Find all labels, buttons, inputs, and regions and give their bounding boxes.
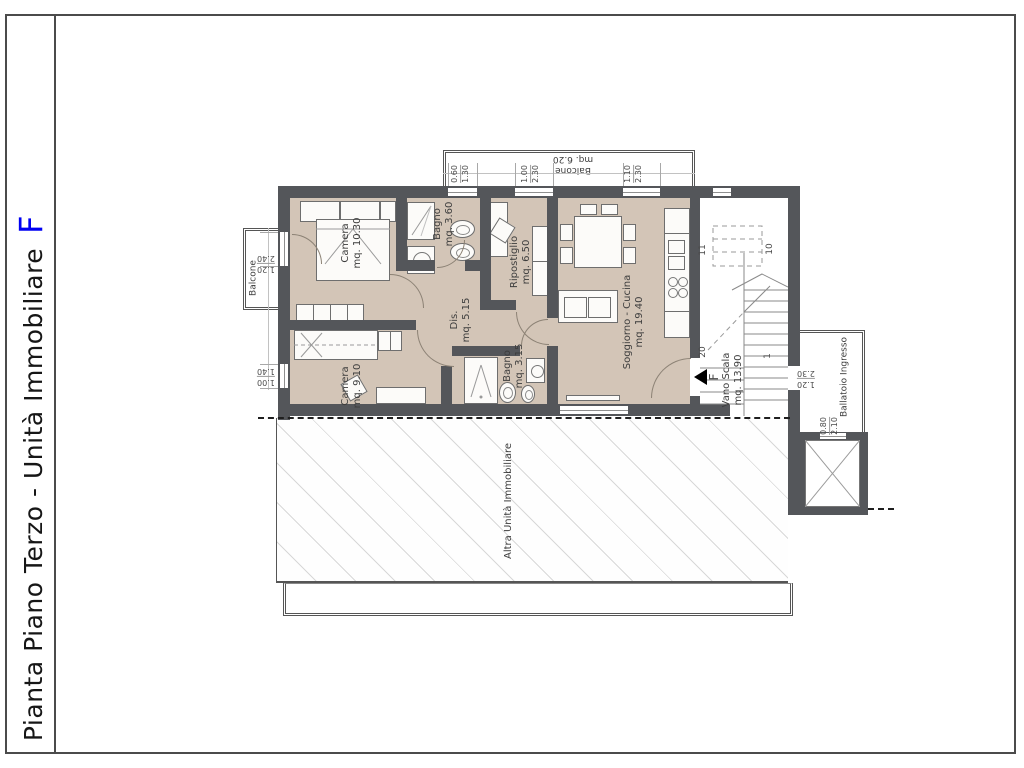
wall	[396, 198, 407, 260]
stair-number: 20	[698, 346, 708, 357]
elevator-wall	[797, 432, 820, 440]
entrance-gallery-label: Ballatoio Ingresso	[840, 337, 851, 417]
room-label-bagno2: Bagnomq. 3.15	[502, 344, 526, 389]
chair	[623, 224, 636, 241]
wall	[547, 346, 558, 404]
dining-table	[574, 216, 622, 268]
desk	[376, 387, 426, 404]
stove-burner	[668, 277, 678, 287]
window-dimension: 1.102.30	[623, 165, 645, 183]
sheet-title: Pianta Piano Terzo - Unità ImmobiliareF	[12, 215, 50, 741]
elevator-wall	[797, 440, 805, 515]
room-label-bagno1: Bagnomq. 3.60	[432, 202, 456, 247]
shower	[464, 357, 498, 404]
wall	[278, 266, 290, 364]
balcony-bottom	[283, 583, 793, 616]
room-label-camera2: Cameramq. 9.10	[340, 364, 364, 409]
wall	[278, 186, 290, 232]
sink-basin	[668, 240, 685, 254]
elevator-wall	[797, 507, 868, 515]
chair	[580, 204, 597, 215]
chair	[601, 204, 618, 215]
room-label-ripostiglio: Ripostigliomq. 6.50	[509, 236, 533, 288]
stove-burner	[668, 288, 678, 298]
chair	[560, 247, 573, 264]
stove-burner	[678, 277, 688, 287]
window	[515, 186, 553, 198]
stair-number: 11	[698, 244, 708, 255]
unit-boundary-dashed	[868, 508, 894, 510]
french-window	[560, 404, 628, 416]
other-unit-label: Altra Unità Immobiliare	[503, 443, 515, 559]
elevator-shaft	[805, 440, 860, 507]
window-dimension: 1.002.30	[520, 165, 542, 183]
room-label-soggiorno: Soggiorno - Cucinamq. 19.40	[622, 275, 646, 369]
window-dimension: 1.001.40	[257, 365, 275, 387]
sheet-title-text: Pianta Piano Terzo - Unità Immobiliare	[19, 248, 48, 741]
door-dimension: 1.202.30	[797, 367, 815, 389]
entrance-arrow-icon	[694, 369, 707, 385]
nightstand	[378, 331, 402, 351]
chair	[560, 224, 573, 241]
window	[448, 186, 477, 198]
room-label-camera1: Cameramq. 10.30	[340, 217, 364, 268]
stair-number: 10	[765, 243, 775, 254]
wardrobe	[532, 226, 548, 296]
wall	[396, 260, 435, 271]
unit-boundary-dashed	[258, 417, 790, 419]
shower	[407, 202, 435, 240]
elevator-wall	[846, 432, 868, 440]
wall	[480, 300, 516, 310]
door-dimension: 0.802.10	[819, 417, 841, 435]
wall	[690, 396, 700, 404]
balcony-top-label: Balconemq. 6.20	[553, 153, 593, 175]
unit-letter: F	[12, 215, 50, 234]
wall	[480, 198, 491, 310]
room-label-dis: Dis.mq. 5.15	[449, 298, 473, 343]
stair-number: 1	[763, 353, 773, 359]
wall	[547, 198, 558, 318]
single-bed	[294, 330, 378, 360]
entrance-unit-letter: F	[707, 374, 721, 381]
wall	[465, 260, 481, 271]
room-label-vano-scala: Vano Scalamq. 13.90	[721, 353, 745, 408]
sofa	[558, 290, 618, 323]
kitchen-counter	[664, 208, 690, 338]
french-door-leaf	[566, 395, 620, 401]
window-dimension: 0.601.30	[450, 165, 472, 183]
washbasin	[526, 358, 545, 383]
window	[713, 186, 731, 198]
wall	[690, 198, 700, 358]
title-column-divider	[54, 14, 56, 754]
other-unit-area	[276, 418, 788, 583]
window-dimension: 1.202.40	[257, 252, 275, 274]
window	[623, 186, 660, 198]
balcony-door	[278, 232, 290, 266]
elevator-wall	[860, 440, 868, 515]
wall	[441, 366, 452, 404]
wardrobe	[296, 304, 364, 321]
window	[278, 364, 290, 388]
wall	[290, 320, 416, 330]
stove-burner	[678, 288, 688, 298]
drawing-sheet: Pianta Piano Terzo - Unità ImmobiliareF …	[0, 0, 1024, 768]
chair	[623, 247, 636, 264]
sink-basin	[668, 256, 685, 270]
